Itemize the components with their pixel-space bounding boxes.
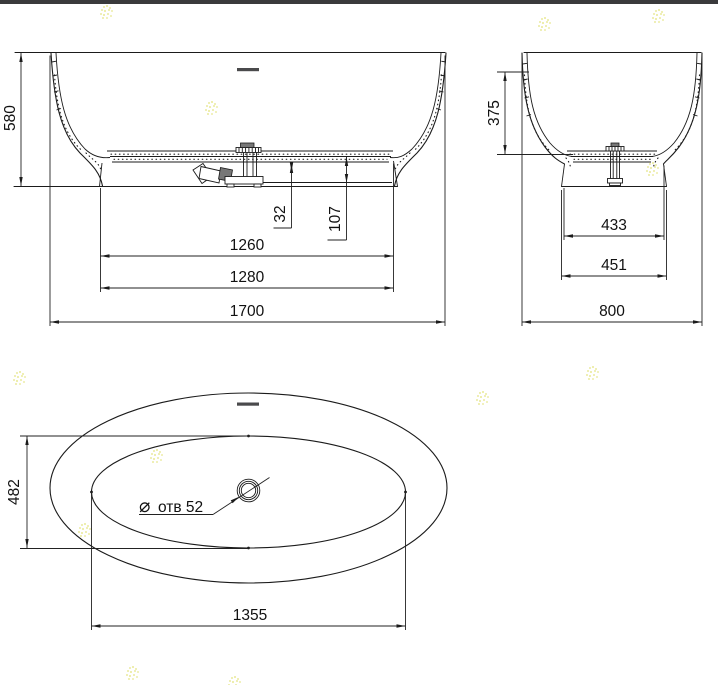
dim-label: 1700	[230, 303, 265, 320]
dim-plan-inner-width: 482	[6, 436, 248, 549]
dim-side-base-top: 433	[564, 166, 664, 241]
front-view: 580 32 107 1260	[2, 53, 446, 327]
drain-hole-label: отв 52	[158, 499, 203, 516]
tub-inner-basin	[92, 436, 406, 548]
plan-view: 482 1355 ⌀ отв 52	[6, 393, 447, 630]
drain-assembly-front	[193, 143, 263, 187]
dim-label: 375	[486, 100, 503, 126]
dim-front-height: 580	[2, 53, 23, 186]
dim-label: 800	[599, 303, 625, 320]
drain-hole	[237, 479, 260, 502]
dim-label: 32	[272, 205, 289, 222]
dim-label: 482	[6, 479, 23, 505]
dim-label: 580	[2, 105, 19, 131]
dim-side-overall-width: 800	[522, 56, 702, 327]
dim-label: 1280	[230, 269, 265, 286]
dim-label: 1355	[233, 607, 267, 624]
overflow-mark-plan	[237, 403, 259, 406]
diameter-icon: ⌀	[139, 496, 150, 517]
dim-side-base-bottom: 451	[562, 190, 667, 280]
material-stipple-front	[55, 75, 442, 170]
technical-drawing: 580 32 107 1260	[0, 0, 718, 685]
dim-front-base-bottom: 1280	[101, 269, 394, 290]
side-view: 375 433 451	[486, 53, 702, 327]
overflow-mark-front	[237, 68, 259, 71]
tub-outer-rim	[50, 393, 447, 583]
tub-outline-front	[14, 53, 446, 187]
dim-label: 433	[601, 217, 627, 234]
drain-assembly-side	[606, 143, 624, 186]
dim-label: 1260	[230, 237, 265, 254]
dim-label: 107	[327, 206, 344, 232]
dim-label: 451	[601, 257, 627, 274]
dim-front-drain-offset: 107	[327, 157, 348, 240]
drawing-canvas: 580 32 107 1260	[0, 0, 718, 685]
dim-front-overflow-gap: 32	[272, 163, 293, 229]
tub-outline-side	[522, 53, 702, 187]
